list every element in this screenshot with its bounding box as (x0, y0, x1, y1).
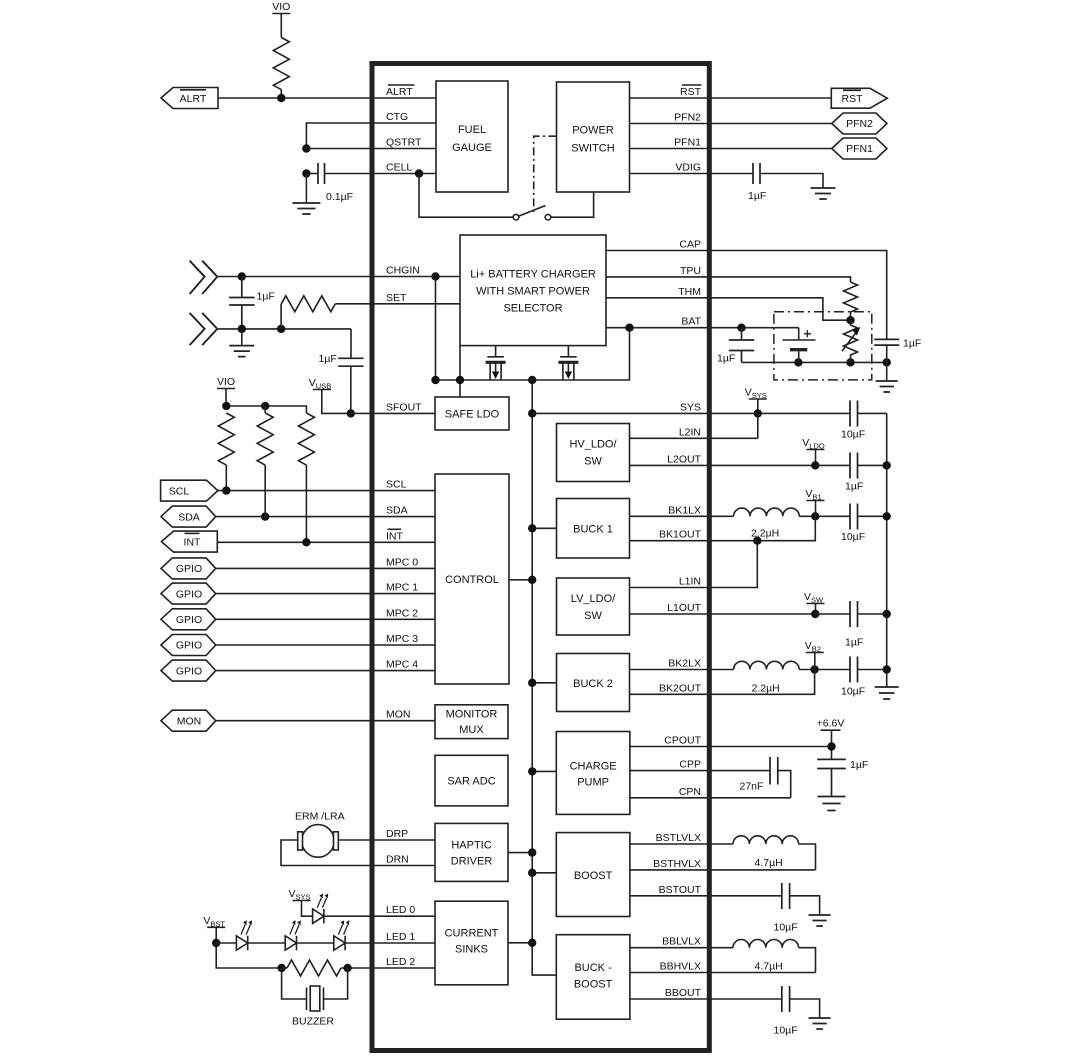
svg-text:4.7µH: 4.7µH (755, 857, 783, 869)
svg-text:10µF: 10µF (774, 1025, 798, 1037)
svg-text:MPC 2: MPC 2 (386, 607, 418, 619)
svg-text:1µF: 1µF (257, 291, 275, 303)
svg-text:INT: INT (184, 536, 202, 548)
svg-text:BBHVLX: BBHVLX (660, 961, 701, 973)
svg-text:DRP: DRP (386, 828, 408, 840)
svg-text:THM: THM (678, 286, 701, 298)
svg-text:10µF: 10µF (841, 686, 865, 698)
svg-text:ERM /LRA: ERM /LRA (295, 811, 345, 823)
svg-text:BSTOUT: BSTOUT (659, 884, 702, 896)
svg-text:MPC 4: MPC 4 (386, 659, 418, 671)
svg-text:TPU: TPU (680, 265, 701, 277)
svg-text:CTG: CTG (386, 111, 408, 123)
svg-text:BUCK -: BUCK - (574, 962, 612, 974)
svg-text:SINKS: SINKS (455, 944, 488, 956)
svg-text:CONTROL: CONTROL (445, 574, 499, 586)
svg-text:4.7µH: 4.7µH (755, 961, 783, 973)
svg-text:BBOUT: BBOUT (665, 987, 702, 999)
svg-text:MUX: MUX (459, 724, 484, 736)
svg-text:SAFE LDO: SAFE LDO (445, 409, 500, 421)
svg-text:MPC 0: MPC 0 (386, 556, 418, 568)
svg-text:BK1LX: BK1LX (668, 504, 701, 516)
svg-text:L1OUT: L1OUT (667, 602, 701, 614)
svg-text:L1IN: L1IN (679, 576, 701, 588)
svg-text:INT: INT (386, 530, 404, 542)
svg-text:2.2µH: 2.2µH (752, 683, 780, 695)
svg-text:SW: SW (584, 610, 602, 622)
svg-text:BOOST: BOOST (574, 979, 613, 991)
svg-text:BSTHVLX: BSTHVLX (653, 858, 701, 870)
svg-text:PFN1: PFN1 (846, 143, 873, 155)
svg-text:GPIO: GPIO (176, 614, 202, 626)
svg-text:QSTRT: QSTRT (386, 137, 422, 149)
svg-text:SDA: SDA (178, 511, 200, 523)
svg-text:1µF: 1µF (748, 190, 766, 202)
svg-text:SAR ADC: SAR ADC (447, 776, 495, 788)
svg-text:GPIO: GPIO (176, 640, 202, 652)
svg-text:WITH SMART POWER: WITH SMART POWER (476, 286, 590, 298)
svg-text:1µF: 1µF (850, 759, 868, 771)
svg-text:VDIG: VDIG (675, 162, 701, 174)
svg-text:DRIVER: DRIVER (451, 856, 493, 868)
svg-text:BSTLVLX: BSTLVLX (656, 832, 701, 844)
svg-text:PUMP: PUMP (577, 777, 609, 789)
svg-text:SWITCH: SWITCH (571, 143, 614, 155)
svg-text:CELL: CELL (386, 162, 412, 174)
svg-text:PFN2: PFN2 (846, 118, 873, 130)
svg-text:GPIO: GPIO (176, 563, 202, 575)
svg-text:BK1OUT: BK1OUT (659, 529, 702, 541)
svg-text:GPIO: GPIO (176, 665, 202, 677)
svg-text:SW: SW (584, 456, 602, 468)
svg-text:BUCK 2: BUCK 2 (573, 678, 613, 690)
svg-text:FUEL: FUEL (458, 124, 486, 136)
svg-text:CAP: CAP (679, 239, 701, 251)
svg-text:HAPTIC: HAPTIC (451, 840, 491, 852)
svg-text:SCL: SCL (169, 485, 190, 497)
svg-text:CPOUT: CPOUT (664, 735, 701, 747)
svg-text:CHGIN: CHGIN (386, 265, 420, 277)
svg-text:BK2OUT: BK2OUT (659, 682, 702, 694)
svg-text:CURRENT: CURRENT (445, 928, 499, 940)
svg-text:BUCK 1: BUCK 1 (573, 524, 613, 536)
svg-text:ALRT: ALRT (180, 93, 207, 105)
svg-text:BBLVLX: BBLVLX (662, 936, 701, 948)
svg-text:BAT: BAT (681, 316, 701, 328)
svg-text:SELECTOR: SELECTOR (503, 303, 562, 315)
svg-text:Li+ BATTERY CHARGER: Li+ BATTERY CHARGER (470, 269, 596, 281)
svg-text:VIO: VIO (217, 376, 235, 388)
svg-text:GAUGE: GAUGE (452, 142, 492, 154)
svg-text:1µF: 1µF (845, 637, 863, 649)
svg-text:BOOST: BOOST (574, 870, 613, 882)
svg-text:CHARGE: CHARGE (570, 761, 617, 773)
svg-text:CPP: CPP (679, 759, 701, 771)
svg-text:27nF: 27nF (740, 781, 764, 793)
svg-text:10µF: 10µF (841, 429, 865, 441)
svg-text:MPC 3: MPC 3 (386, 633, 418, 645)
svg-text:1µF: 1µF (319, 353, 337, 365)
svg-text:SCL: SCL (386, 479, 407, 491)
svg-text:L2OUT: L2OUT (667, 453, 701, 465)
svg-text:MONITOR: MONITOR (446, 709, 498, 721)
svg-text:RST: RST (842, 93, 864, 105)
svg-text:10µF: 10µF (841, 531, 865, 543)
svg-text:L2IN: L2IN (679, 426, 701, 438)
svg-text:1µF: 1µF (903, 338, 921, 350)
svg-text:LV_LDO/: LV_LDO/ (571, 593, 616, 605)
svg-text:MPC 1: MPC 1 (386, 582, 418, 594)
svg-text:PFN1: PFN1 (674, 137, 701, 149)
svg-text:POWER: POWER (572, 125, 614, 137)
svg-text:SFOUT: SFOUT (386, 401, 422, 413)
svg-text:LED 2: LED 2 (386, 956, 415, 968)
svg-text:BK2LX: BK2LX (668, 658, 701, 670)
svg-text:PFN2: PFN2 (674, 112, 701, 124)
svg-text:SET: SET (386, 292, 407, 304)
svg-text:LED 0: LED 0 (386, 904, 415, 916)
svg-text:MON: MON (177, 715, 202, 727)
svg-text:ALRT: ALRT (386, 86, 413, 98)
svg-text:HV_LDO/: HV_LDO/ (569, 439, 617, 451)
svg-text:RST: RST (680, 86, 702, 98)
svg-text:CPN: CPN (679, 786, 701, 798)
svg-text:SYS: SYS (680, 401, 701, 413)
svg-text:LED 1: LED 1 (386, 931, 415, 943)
svg-text:VIO: VIO (272, 1, 290, 13)
svg-text:BUZZER: BUZZER (292, 1016, 334, 1028)
svg-text:GPIO: GPIO (176, 588, 202, 600)
svg-text:MON: MON (386, 709, 411, 721)
svg-text:1µF: 1µF (717, 353, 735, 365)
svg-text:10µF: 10µF (774, 922, 798, 934)
svg-text:0.1µF: 0.1µF (326, 191, 353, 203)
svg-text:DRN: DRN (386, 854, 409, 866)
svg-text:SDA: SDA (386, 505, 408, 517)
svg-text:1µF: 1µF (845, 481, 863, 493)
svg-text:+6.6V: +6.6V (817, 718, 845, 730)
